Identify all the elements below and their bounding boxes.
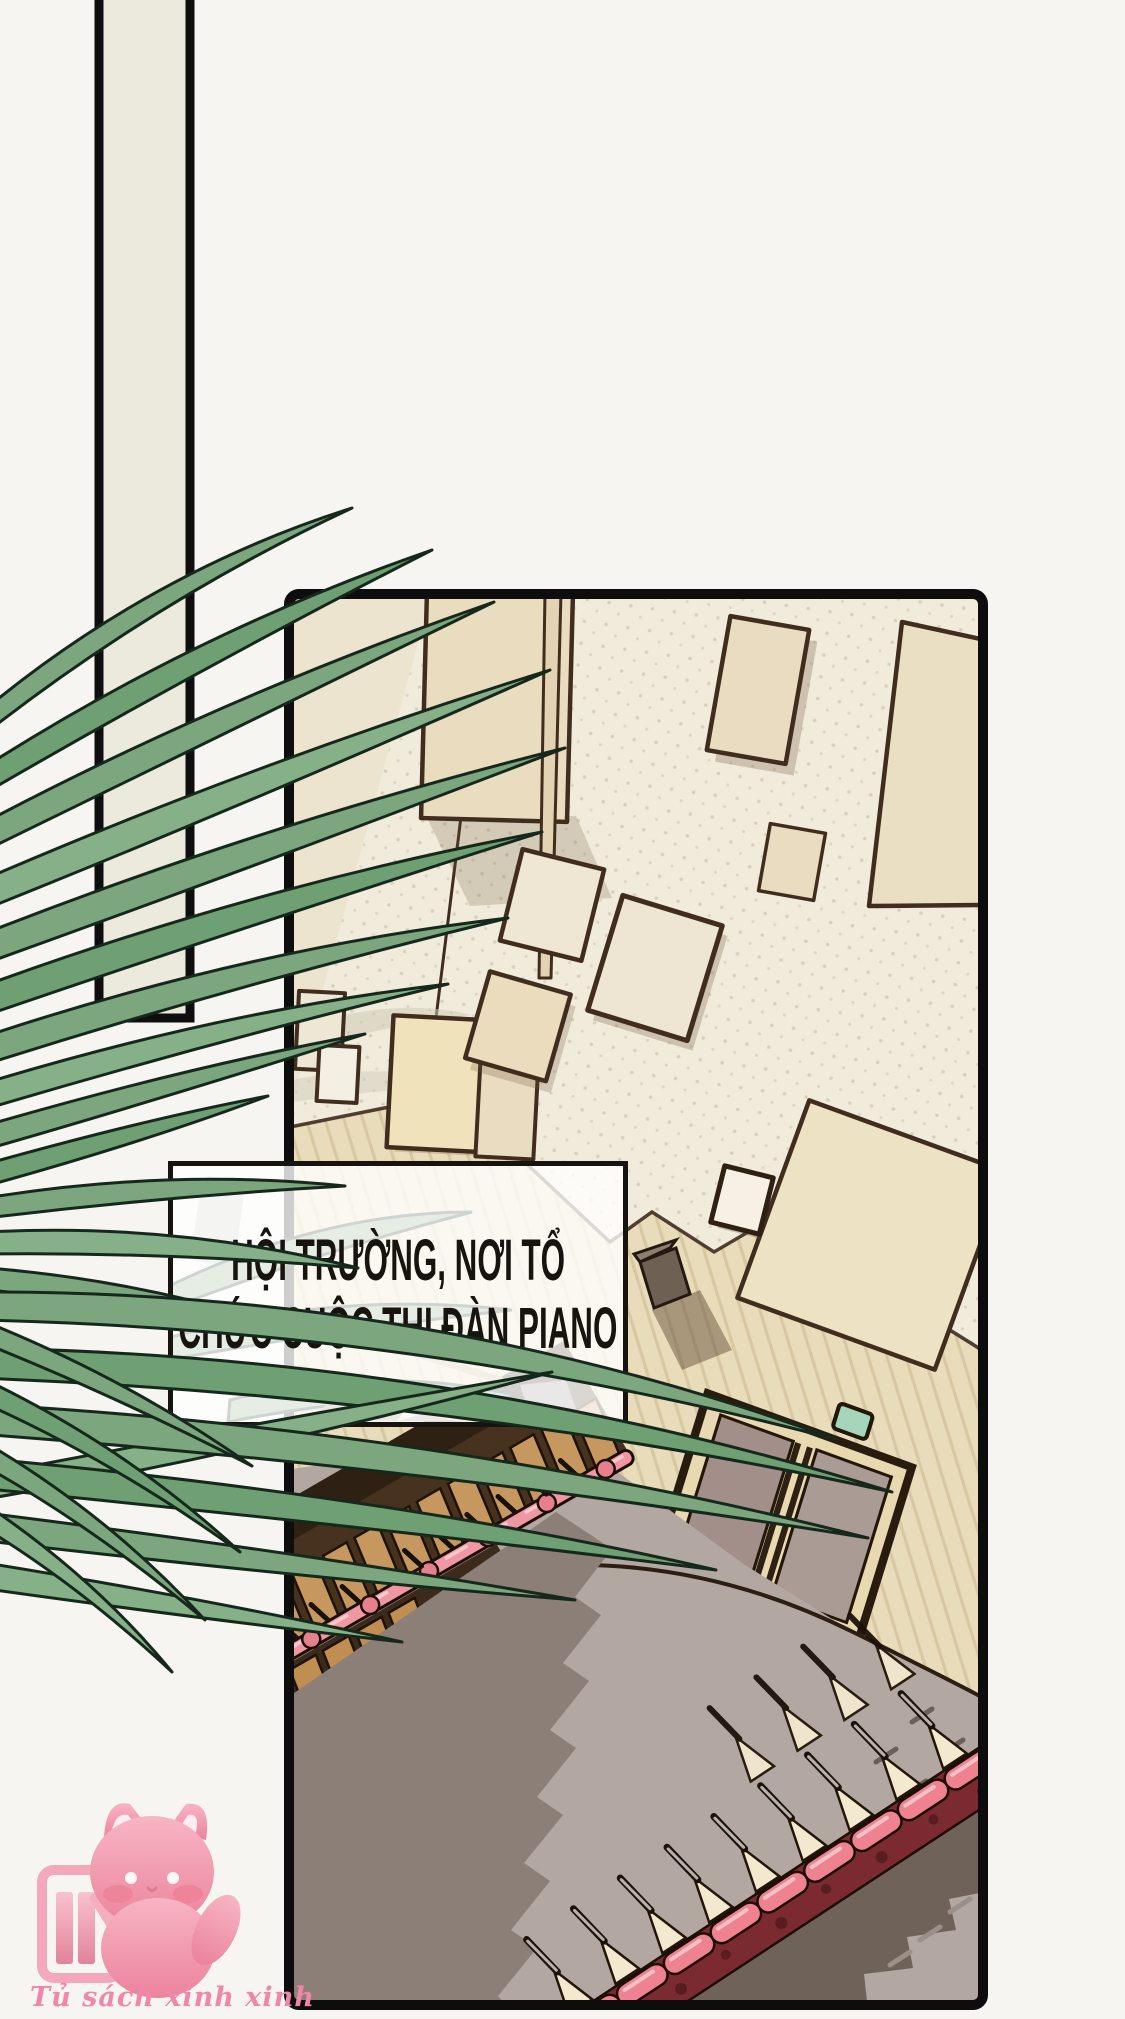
caption-line-2: CHỨC CUỘC THI ĐÀN PIANO bbox=[179, 1293, 618, 1364]
caption-box: HỘI TRƯỜNG, NƠI TỔ CHỨC CUỘC THI ĐÀN PIA… bbox=[168, 1161, 628, 1427]
publisher-logo bbox=[0, 1760, 280, 2019]
left-margin-strip bbox=[99, 0, 190, 1018]
cat-mascot bbox=[90, 1803, 251, 1998]
caption-line-1: HỘI TRƯỜNG, NƠI TỔ bbox=[231, 1224, 565, 1295]
panel-scene bbox=[0, 0, 1125, 2019]
comic-page: HỘI TRƯỜNG, NƠI TỔ CHỨC CUỘC THI ĐÀN PIA… bbox=[0, 0, 1125, 2019]
watermark-text: Tủ sách xinh xinh bbox=[30, 1982, 230, 2013]
